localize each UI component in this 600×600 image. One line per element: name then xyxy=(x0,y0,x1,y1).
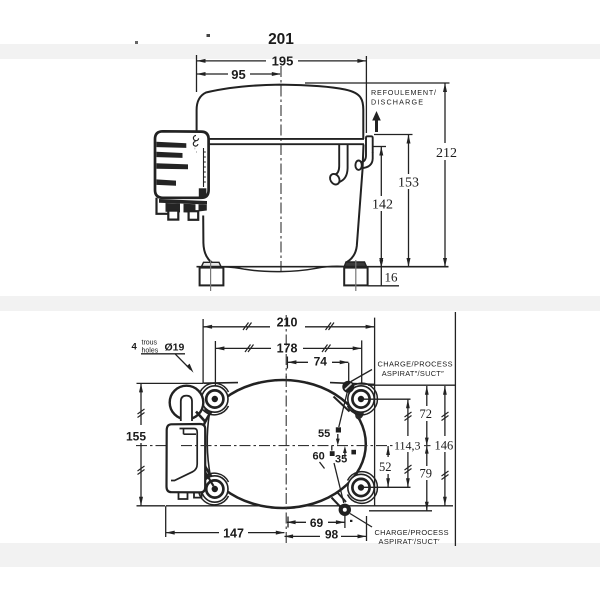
svg-text:74: 74 xyxy=(314,355,328,369)
svg-text:114,3: 114,3 xyxy=(394,438,421,452)
svg-text:Ø19: Ø19 xyxy=(165,342,185,354)
svg-text:98: 98 xyxy=(325,528,339,542)
svg-text:4: 4 xyxy=(132,342,138,353)
svg-text:ASPIRAT′/SUCT′: ASPIRAT′/SUCT′ xyxy=(379,537,441,546)
svg-text:trous: trous xyxy=(142,339,158,346)
svg-text:146: 146 xyxy=(435,438,454,452)
svg-text:195: 195 xyxy=(272,53,294,68)
svg-text:178: 178 xyxy=(277,342,298,356)
svg-text:201: 201 xyxy=(268,31,294,48)
svg-text:153: 153 xyxy=(398,176,419,191)
svg-text:72: 72 xyxy=(420,407,433,421)
svg-text:79: 79 xyxy=(420,466,433,480)
svg-text:REFOULEMENT/: REFOULEMENT/ xyxy=(371,88,436,97)
svg-text:CHARGE/PROCESS: CHARGE/PROCESS xyxy=(378,359,453,368)
svg-text:142: 142 xyxy=(372,198,393,213)
svg-text:95: 95 xyxy=(231,67,245,82)
svg-text:60: 60 xyxy=(313,451,325,463)
svg-text:52: 52 xyxy=(379,460,392,474)
svg-text:147: 147 xyxy=(223,526,244,540)
svg-text:DISCHARGE: DISCHARGE xyxy=(371,98,423,107)
svg-text:CHARGE/PROCESS: CHARGE/PROCESS xyxy=(375,528,449,537)
svg-text:212: 212 xyxy=(436,146,457,161)
svg-text:ASPIRAT″/SUCT″: ASPIRAT″/SUCT″ xyxy=(382,369,444,378)
svg-text:16: 16 xyxy=(385,270,399,285)
svg-text:69: 69 xyxy=(310,516,324,530)
svg-text:55: 55 xyxy=(318,428,330,440)
svg-text:155: 155 xyxy=(126,430,146,444)
svg-text:210: 210 xyxy=(277,316,298,330)
